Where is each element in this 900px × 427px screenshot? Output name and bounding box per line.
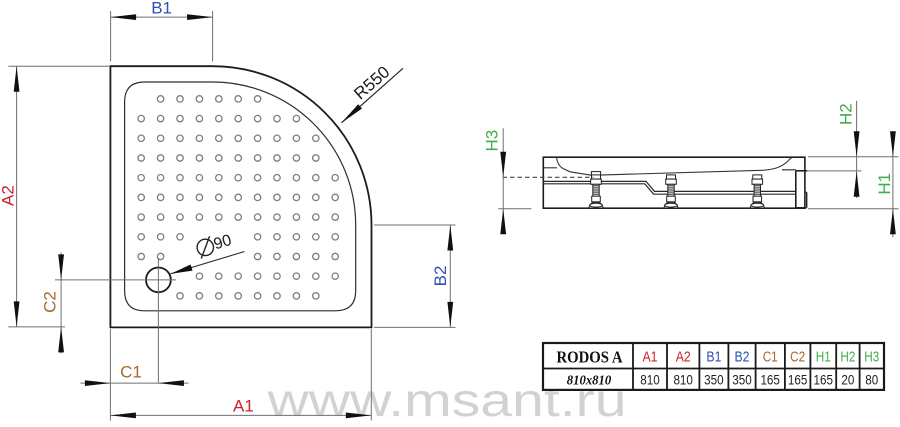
- svg-text:H1: H1: [816, 350, 831, 366]
- svg-text:20: 20: [841, 372, 854, 387]
- svg-text:A1: A1: [643, 350, 658, 366]
- svg-text:810: 810: [640, 372, 660, 387]
- svg-text:A2: A2: [676, 350, 691, 366]
- svg-text:H1: H1: [875, 173, 894, 195]
- svg-text:350: 350: [732, 372, 752, 387]
- svg-text:C1: C1: [763, 350, 778, 366]
- svg-text:80: 80: [865, 372, 878, 387]
- svg-text:B1: B1: [706, 350, 721, 366]
- svg-text:H3: H3: [864, 350, 879, 366]
- svg-text:C2: C2: [790, 350, 805, 366]
- svg-text:C2: C2: [41, 291, 60, 313]
- svg-text:B1: B1: [151, 0, 172, 18]
- svg-text:B2: B2: [735, 350, 750, 366]
- svg-text:350: 350: [704, 372, 724, 387]
- svg-text:H3: H3: [483, 130, 502, 152]
- svg-text:810x810: 810x810: [567, 374, 612, 389]
- svg-text:165: 165: [760, 372, 780, 387]
- svg-text:165: 165: [814, 372, 834, 387]
- svg-text:810: 810: [673, 372, 693, 387]
- svg-text:165: 165: [788, 372, 808, 387]
- svg-text:C1: C1: [120, 363, 142, 382]
- svg-text:H2: H2: [840, 350, 855, 366]
- svg-text:A2: A2: [0, 185, 18, 206]
- svg-text:A1: A1: [233, 397, 254, 416]
- svg-text:RODOS A: RODOS A: [557, 347, 624, 366]
- svg-text:B2: B2: [431, 266, 450, 287]
- svg-text:H2: H2: [837, 103, 856, 125]
